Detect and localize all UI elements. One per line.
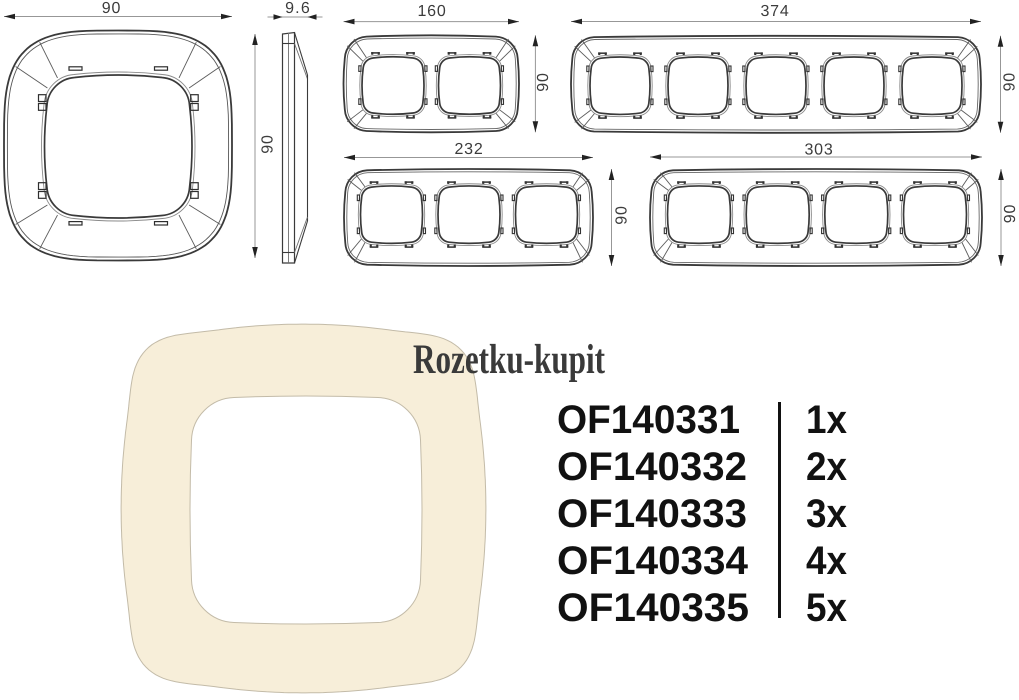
svg-text:1x: 1x <box>806 398 847 442</box>
svg-text:90: 90 <box>614 205 631 224</box>
svg-text:90: 90 <box>535 72 552 91</box>
svg-text:160: 160 <box>417 3 446 20</box>
svg-text:Rozetku-kupit: Rozetku-kupit <box>413 337 605 383</box>
svg-text:90: 90 <box>1002 72 1019 91</box>
svg-text:OF140335: OF140335 <box>557 586 749 630</box>
svg-text:OF140333: OF140333 <box>557 492 747 536</box>
svg-text:OF140332: OF140332 <box>557 445 747 489</box>
svg-text:OF140334: OF140334 <box>557 539 749 583</box>
svg-text:90: 90 <box>1002 204 1019 223</box>
svg-text:232: 232 <box>454 141 483 158</box>
svg-text:5x: 5x <box>806 586 847 630</box>
svg-text:3x: 3x <box>806 492 847 536</box>
svg-text:4x: 4x <box>806 539 847 583</box>
svg-text:2x: 2x <box>806 445 847 489</box>
svg-text:90: 90 <box>260 134 277 153</box>
svg-text:90: 90 <box>102 0 121 17</box>
svg-text:303: 303 <box>804 142 833 159</box>
svg-text:OF140331: OF140331 <box>557 398 740 442</box>
svg-text:9.6: 9.6 <box>285 0 311 17</box>
svg-text:374: 374 <box>760 3 789 20</box>
